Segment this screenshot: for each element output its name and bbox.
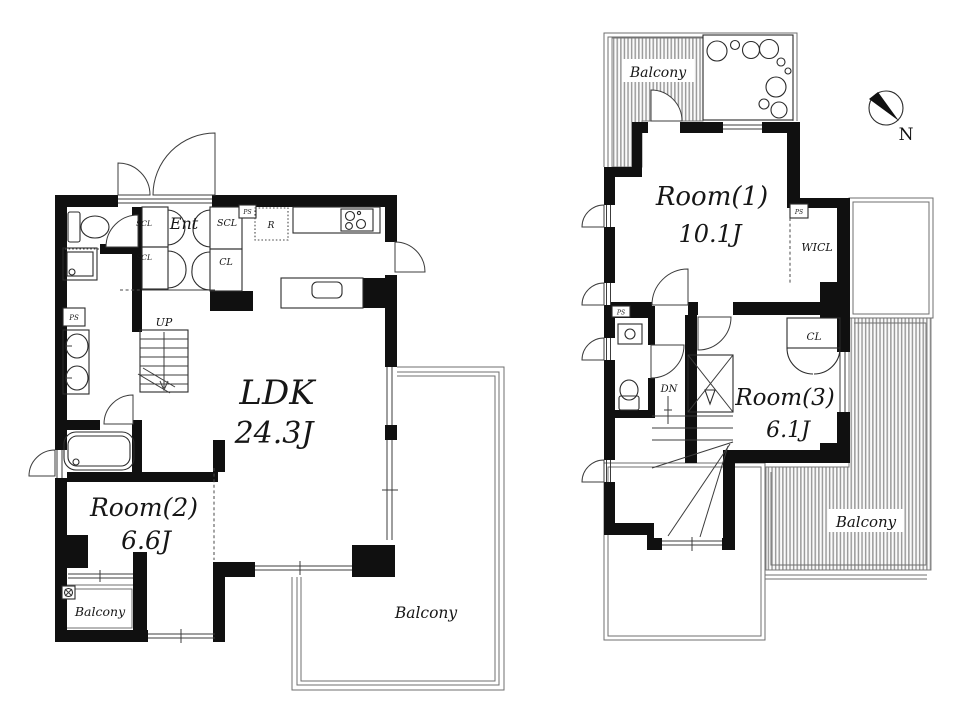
toilet2-door-arc <box>651 345 684 378</box>
balcony-right-label: Balcony <box>835 513 897 531</box>
toilet-door-arc <box>106 215 138 247</box>
entrance-label: Ent <box>169 214 199 233</box>
room2-size: 6.6J <box>121 526 173 555</box>
floor-1-plan: LDK 24.3J Room(2) 6.6J Ent SCL SCL SCL C… <box>29 133 504 690</box>
balcony-main-label: Balcony <box>394 604 458 622</box>
scl-label: SCL <box>217 218 237 229</box>
room2-label: Room(2) <box>89 493 198 522</box>
room3-size: 6.1J <box>766 418 811 443</box>
balcony-top-label: Balcony <box>629 65 687 81</box>
bathtub-icon <box>64 432 134 470</box>
planter-box <box>703 35 793 120</box>
ldk-size: 24.3J <box>234 416 316 451</box>
cl-double-door <box>787 348 813 374</box>
toilet-icon <box>68 212 109 242</box>
wicl-label: WICL <box>801 241 832 254</box>
ac-unit-icon <box>62 586 75 599</box>
kitchen-service-door-arc <box>395 242 425 272</box>
scl-label: SCL <box>136 253 152 262</box>
stairs-up-label: UP <box>156 316 173 329</box>
floor-plan-canvas: LDK 24.3J Room(2) 6.6J Ent SCL SCL SCL C… <box>0 0 960 717</box>
sink-icon <box>618 324 642 344</box>
cl-double-door <box>814 348 840 374</box>
entrance-door-arc <box>153 133 215 195</box>
exterior-window-arc <box>582 338 604 360</box>
balcony-small-label: Balcony <box>74 604 126 619</box>
exterior-window-arc <box>582 205 604 227</box>
entrance-door-arc-small <box>118 163 150 195</box>
floor-plan-page: LDK 24.3J Room(2) 6.6J Ent SCL SCL SCL C… <box>0 0 960 717</box>
kitchen-counter <box>293 207 380 233</box>
washroom-exterior-arc <box>29 450 55 476</box>
main-balcony-outline <box>292 367 504 690</box>
kitchen-island <box>281 278 363 308</box>
compass-icon: N <box>869 91 914 145</box>
exterior-door-arc <box>582 460 604 482</box>
ps-label: PS <box>616 310 625 317</box>
room3-label: Room(3) <box>734 385 834 411</box>
room1-size: 10.1J <box>678 220 742 248</box>
ps-label: PS <box>242 209 251 216</box>
cl-bifold-door <box>192 252 210 290</box>
room1-door-arc <box>652 269 688 305</box>
island-sink-icon <box>312 282 342 298</box>
fridge-label: R <box>267 221 275 231</box>
ps-label: PS <box>794 209 803 216</box>
toilet-icon <box>619 380 639 410</box>
roof-terrace-outline <box>849 198 933 318</box>
cl-label: CL <box>806 331 821 343</box>
bathroom-door-arc <box>104 395 133 424</box>
room1-label: Room(1) <box>655 182 768 212</box>
stairs-up <box>138 330 188 393</box>
ps-label: PS <box>68 314 79 322</box>
scl-bifold-door <box>168 251 186 288</box>
compass-north-label: N <box>899 125 914 145</box>
cl-label: CL <box>219 257 233 268</box>
scl-label: SCL <box>136 219 152 228</box>
ldk-label: LDK <box>238 373 317 413</box>
exterior-window-arc <box>582 283 604 305</box>
room3-door-arc <box>698 317 731 350</box>
washer-pan-icon <box>63 248 97 280</box>
stairs-down-label: DN <box>660 384 679 395</box>
